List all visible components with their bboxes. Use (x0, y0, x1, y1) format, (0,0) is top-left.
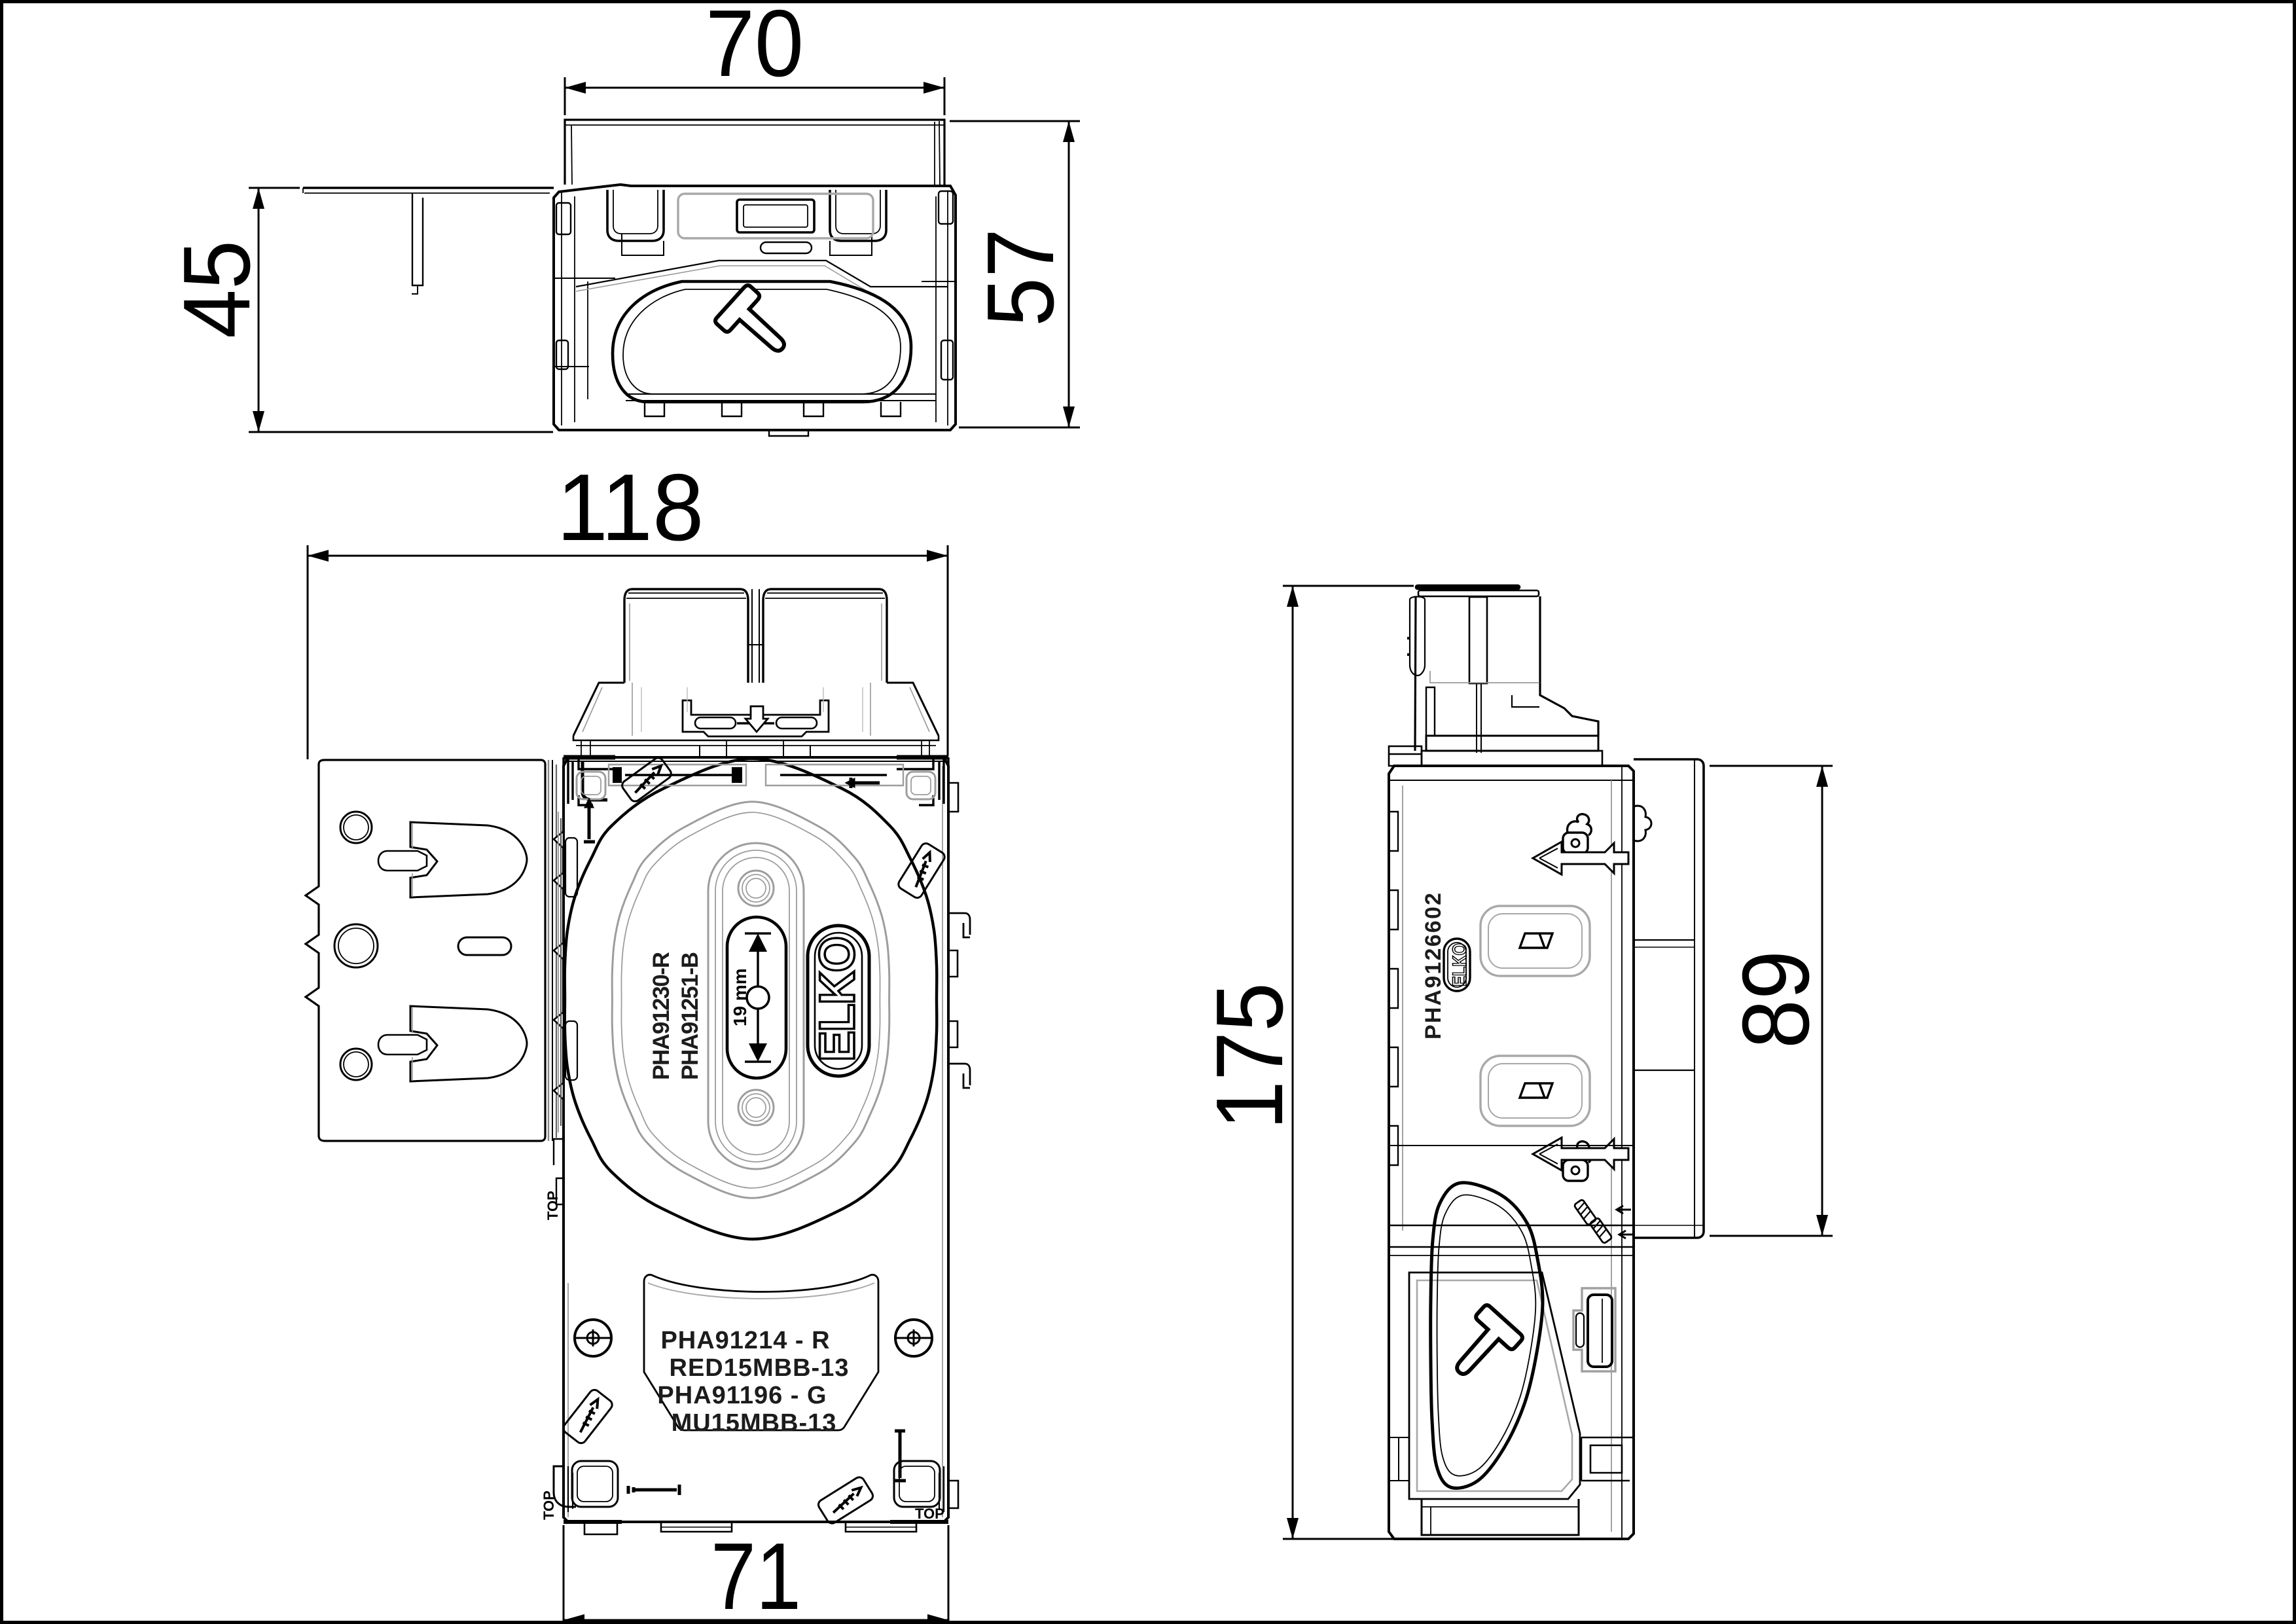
svg-text:PHA91196 - G: PHA91196 - G (657, 1382, 827, 1409)
svg-text:RED15MBB-13: RED15MBB-13 (670, 1354, 850, 1382)
svg-text:175: 175 (1196, 983, 1302, 1130)
svg-text:MU15MBB-13: MU15MBB-13 (672, 1409, 837, 1437)
svg-text:PHA91251-B: PHA91251-B (677, 952, 703, 1080)
svg-text:ELKO: ELKO (810, 937, 865, 1062)
svg-text:57: 57 (967, 228, 1073, 327)
svg-text:118: 118 (557, 454, 704, 560)
svg-text:ELKO: ELKO (1449, 943, 1471, 986)
svg-text:PHA9126602: PHA9126602 (1421, 893, 1446, 1039)
svg-text:TOP: TOP (915, 1506, 944, 1522)
svg-text:PHA91230-R: PHA91230-R (649, 952, 674, 1080)
svg-text:45: 45 (164, 240, 270, 338)
svg-text:89: 89 (1723, 950, 1829, 1049)
svg-text:70: 70 (706, 0, 804, 96)
svg-text:TOP: TOP (541, 1490, 557, 1520)
svg-text:19 mm: 19 mm (730, 968, 750, 1026)
svg-text:71: 71 (711, 1523, 801, 1624)
svg-text:PHA91214 - R: PHA91214 - R (660, 1327, 830, 1354)
svg-text:TOP: TOP (545, 1191, 561, 1220)
